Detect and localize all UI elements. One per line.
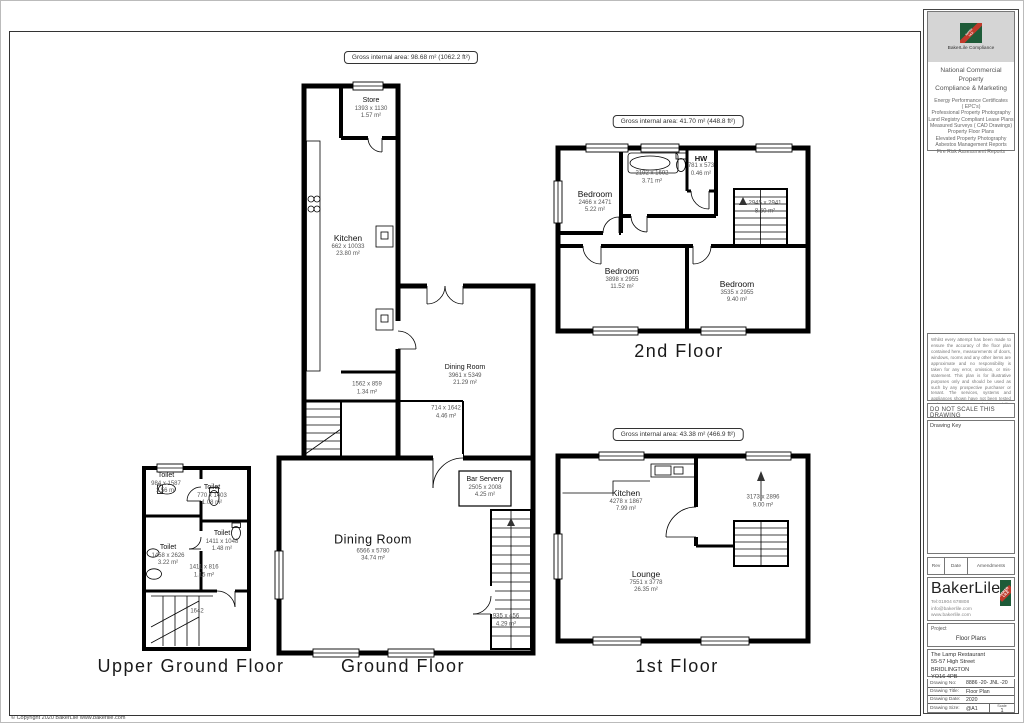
room-name: Bedroom xyxy=(578,189,613,200)
room-area: 4.29 m² xyxy=(493,621,519,629)
brand-web: www.bakerlile.com xyxy=(931,613,1000,620)
bakerlile-compliance-logo: BAKER LILE xyxy=(960,23,982,43)
address-line: BRIDLINGTON xyxy=(931,667,1011,674)
gross-area-ground: Gross internal area: 98.68 m² (1062.2 ft… xyxy=(344,51,478,64)
logo-text-bottom: LILE xyxy=(1003,591,1011,599)
room-dims: 770 x 1403 xyxy=(197,493,227,501)
title-second-floor: 2nd Floor xyxy=(634,341,724,362)
stairs xyxy=(734,471,788,566)
room-dims: 6566 x 5780 xyxy=(334,548,412,556)
brand-wordmark: BakerLile xyxy=(931,580,1000,598)
room-label-bar-servery: Bar Servery 2505 x 2008 4.25 m² xyxy=(467,476,504,500)
room-label-store: Store 1393 x 1130 1.57 m² xyxy=(355,97,388,121)
room-area: 4.25 m² xyxy=(467,492,504,500)
room-area: 3.22 m² xyxy=(151,560,184,568)
room-name: Dining Room xyxy=(445,364,485,373)
services-list: Energy Performance Certificates ( EPC's)… xyxy=(928,98,1014,155)
room-name: Toilet xyxy=(197,484,227,493)
room-label-stairs2: 2945 x 2941 8.50 m² xyxy=(748,201,781,216)
room-label-bedroom2: Bedroom 3898 x 2955 11.52 m² xyxy=(605,266,640,292)
room-label-toilet1: Toilet 984 x 1587 1.56 m² xyxy=(151,472,181,496)
room-area: 1.57 m² xyxy=(355,113,388,121)
room-area: 8.50 m² xyxy=(748,208,781,216)
room-area: 4.46 m² xyxy=(431,413,461,421)
drawing-info-panel: Drawing No: 8886 -20- JNL -20 Drawing Ti… xyxy=(927,679,1015,713)
logo-text-bottom: LILE xyxy=(969,31,975,37)
room-dims: 1562 x 859 xyxy=(352,382,382,390)
address-line: 55-57 High Street xyxy=(931,659,1011,666)
room-label-corridor: 1411 x 816 1.15 m² xyxy=(189,565,218,580)
disclaimer-panel: Whilst every attempt has been made to en… xyxy=(927,333,1015,401)
gross-area-first: Gross internal area: 43.38 m² (466.9 ft²… xyxy=(613,428,744,441)
second-floor-plan xyxy=(553,141,815,339)
room-name: Toilet xyxy=(151,544,184,553)
windows xyxy=(275,82,434,657)
room-area: 5.22 m² xyxy=(578,207,613,215)
scale-box: Scale 1 xyxy=(989,704,1014,713)
room-area: 1.56 m² xyxy=(151,488,181,496)
room-area: 23.80 m² xyxy=(331,251,364,259)
service-item: Professional Property Photography xyxy=(928,110,1014,116)
room-area: 1.48 m² xyxy=(206,546,239,554)
room-label-bathroom: 2192 x 1692 3.71 m² xyxy=(635,171,668,186)
room-label-dining-main: Dining Room 6566 x 5780 34.74 m² xyxy=(334,533,412,564)
drawing-key-label: Drawing Key xyxy=(928,421,1014,431)
room-area: 3.71 m² xyxy=(635,178,668,186)
first-floor-plan xyxy=(553,449,815,649)
room-name: Dining Room xyxy=(334,533,412,549)
room-dims: 2505 x 2008 xyxy=(467,485,504,493)
room-name: Lounge xyxy=(629,569,662,580)
room-dims: 1642 xyxy=(190,608,203,616)
room-name: Bedroom xyxy=(720,279,755,290)
address-line: The Lamp Restaurant xyxy=(931,652,1011,659)
room-dims: 4278 x 1867 xyxy=(609,499,642,507)
room-dims: 3535 x 2955 xyxy=(720,290,755,298)
room-dims: 7551 x 3778 xyxy=(629,580,662,588)
room-dims: 3898 x 2955 xyxy=(605,277,640,285)
drawing-date-value: 2020 xyxy=(966,697,978,703)
room-area: 0.46 m² xyxy=(688,171,714,179)
windows xyxy=(157,464,183,472)
room-name: Bar Servery xyxy=(467,476,504,485)
walls xyxy=(558,456,808,641)
gross-area-second: Gross internal area: 41.70 m² (448.8 ft²… xyxy=(613,115,744,128)
room-area: 11.52 m² xyxy=(605,284,640,292)
rev-col-header: Rev xyxy=(928,558,945,574)
address-panel: The Lamp Restaurant 55-57 High Street BR… xyxy=(927,649,1015,677)
room-dims: 984 x 1587 xyxy=(151,481,181,489)
project-panel: Project Floor Plans xyxy=(927,623,1015,647)
amendments-col-header: Amendments xyxy=(968,558,1014,574)
room-label-dining-upper: Dining Room 3961 x 5349 21.29 m² xyxy=(445,364,485,388)
room-label-bedroom3: Bedroom 3535 x 2955 9.40 m² xyxy=(720,279,755,305)
drawing-title-value: Floor Plan xyxy=(966,689,990,695)
room-area: 21.29 m² xyxy=(445,380,485,388)
walls xyxy=(558,148,808,331)
room-label-kitchen1: Kitchen 4278 x 1867 7.99 m² xyxy=(609,488,642,514)
room-area: 9.40 m² xyxy=(720,297,755,305)
room-dims: 1411 x 1048 xyxy=(206,539,239,547)
room-area: 1.15 m² xyxy=(189,572,218,580)
stairs xyxy=(734,189,787,246)
brand-tel: Tel:01904 678808 xyxy=(931,600,1000,607)
room-label-toilet4: Toilet 1458 x 2626 3.22 m² xyxy=(151,544,184,568)
room-label-hw: HW 781 x 573 0.46 m² xyxy=(688,154,714,178)
room-name: Toilet xyxy=(206,530,239,539)
service-item: Fire Risk Assessment Reports xyxy=(928,149,1014,155)
room-name: Bedroom xyxy=(605,266,640,277)
room-label-lounge: Lounge 7551 x 3778 26.35 m² xyxy=(629,569,662,595)
copyright-text: © Copyright 2020 BakerLile www.bakerlile… xyxy=(11,715,125,721)
room-area: 9.00 m² xyxy=(746,502,779,510)
drawing-size-value: @A1 xyxy=(966,706,978,712)
brand-panel: BakerLile Tel:01904 678808 info@bakerlil… xyxy=(927,577,1015,621)
room-name: Kitchen xyxy=(331,233,364,244)
title-upper-ground-floor: Upper Ground Floor xyxy=(97,656,284,677)
doors xyxy=(666,507,700,537)
room-area: 1.08 m² xyxy=(197,500,227,508)
compliance-caption: BakerLile Compliance xyxy=(948,46,995,51)
room-dims: 1458 x 2626 xyxy=(151,553,184,561)
room-label-stair-hall: 714 x 1642 4.46 m² xyxy=(431,406,461,421)
project-value: Floor Plans xyxy=(931,636,1011,642)
room-dims: 3173 x 2896 xyxy=(746,495,779,503)
room-dims: 781 x 573 xyxy=(688,163,714,171)
room-area: 1.34 m² xyxy=(352,389,382,397)
drawing-no-value: 8886 -20- JNL -20 xyxy=(966,680,1008,686)
compliance-header: BAKER LILE BakerLile Compliance xyxy=(928,12,1014,62)
room-dims: 662 x 10033 xyxy=(331,244,364,252)
room-dims: 2945 x 2941 xyxy=(748,201,781,209)
room-name: Toilet xyxy=(151,472,181,481)
heading-line1: National Commercial Property xyxy=(928,67,1014,85)
compliance-panel: BAKER LILE BakerLile Compliance National… xyxy=(927,11,1015,151)
room-label-toilet2: Toilet 770 x 1403 1.08 m² xyxy=(197,484,227,508)
windows xyxy=(554,452,791,645)
room-dims: 2466 x 2471 xyxy=(578,200,613,208)
room-label-lobby: 1562 x 859 1.34 m² xyxy=(352,382,382,397)
room-area: 34.74 m² xyxy=(334,556,412,564)
room-label-bedroom1: Bedroom 2466 x 2471 5.22 m² xyxy=(578,189,613,215)
drawing-size-label: Drawing Size: xyxy=(928,706,966,711)
compliance-heading: National Commercial Property Compliance … xyxy=(928,67,1014,94)
title-first-floor: 1st Floor xyxy=(635,656,719,677)
ground-floor-plan xyxy=(273,81,539,657)
room-label-stair-lobby: 935 x 456 4.29 m² xyxy=(493,614,519,629)
room-label-stair-dim: 1642 xyxy=(190,608,203,616)
room-dims: 1411 x 816 xyxy=(189,565,218,573)
project-label: Project xyxy=(931,626,1011,632)
drawing-key-panel: Drawing Key xyxy=(927,420,1015,554)
room-label-kitchen: Kitchen 662 x 10033 23.80 m² xyxy=(331,233,364,259)
title-ground-floor: Ground Floor xyxy=(341,656,465,677)
room-dims: 3961 x 5349 xyxy=(445,373,485,381)
revision-table: Rev Date Amendments xyxy=(927,557,1015,575)
room-name: Store xyxy=(355,97,388,106)
drawing-date-label: Drawing Date: xyxy=(928,697,966,702)
service-item: Asbestos Management Reports xyxy=(928,142,1014,148)
heading-line2: Compliance & Marketing xyxy=(928,85,1014,94)
room-dims: 1393 x 1130 xyxy=(355,106,388,114)
stairs xyxy=(151,596,213,646)
walls xyxy=(279,86,533,653)
room-dims: 714 x 1642 xyxy=(431,406,461,414)
room-area: 7.99 m² xyxy=(609,506,642,514)
drawing-no-label: Drawing No: xyxy=(928,681,966,686)
scale-value: 1 xyxy=(990,708,1014,714)
drawing-title-label: Drawing Title: xyxy=(928,689,966,694)
do-not-scale-panel: DO NOT SCALE THIS DRAWING xyxy=(927,403,1015,418)
room-area: 26.35 m² xyxy=(629,587,662,595)
room-dims: 935 x 456 xyxy=(493,614,519,622)
room-name: Kitchen xyxy=(609,488,642,499)
room-label-stair-hall1: 3173 x 2896 9.00 m² xyxy=(746,495,779,510)
drawing-sheet: Gross internal area: 98.68 m² (1062.2 ft… xyxy=(0,0,1024,723)
bakerlile-logo: BAKER LILE xyxy=(1000,580,1011,606)
date-col-header: Date xyxy=(945,558,968,574)
room-name: HW xyxy=(688,154,714,163)
room-label-toilet3: Toilet 1411 x 1048 1.48 m² xyxy=(206,530,239,554)
room-dims: 2192 x 1692 xyxy=(635,171,668,179)
